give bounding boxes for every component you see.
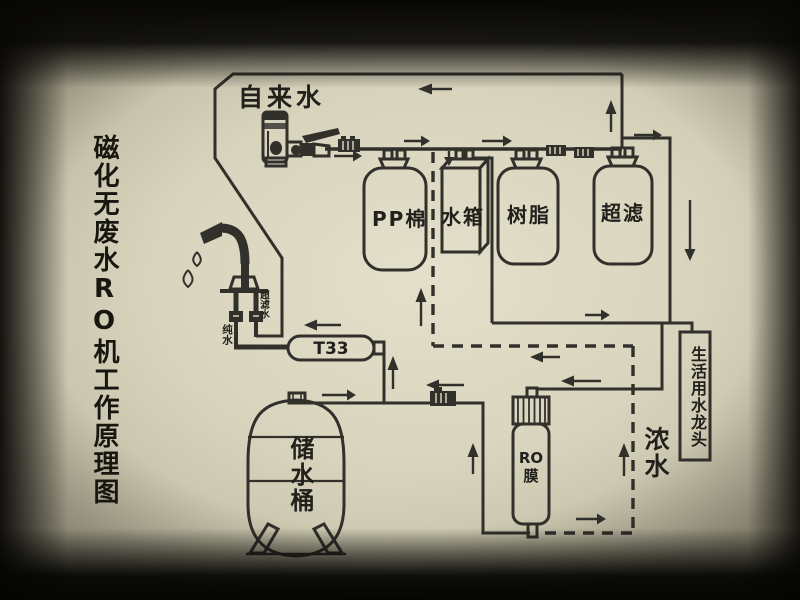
ro-membrane-label: RO膜 xyxy=(513,449,549,485)
arrow-right-main2-icon xyxy=(482,136,512,147)
diagram-title: 磁化无废水RO机工作原理图 xyxy=(86,134,123,520)
arrow-down-right-icon xyxy=(685,200,696,261)
arrow-left-checkvalve-icon xyxy=(426,380,464,391)
inline-fitting-3 xyxy=(574,147,594,158)
uf-water-label: 超滤水 xyxy=(256,290,270,322)
inlet-three-way-valve xyxy=(287,128,340,156)
arrow-left-ro-feed-icon xyxy=(561,376,601,387)
arrow-up-concentrate-icon xyxy=(619,443,630,476)
pp-cotton-label: PP棉 xyxy=(372,203,422,232)
domestic-faucet-label: 生活用水龙头 xyxy=(682,337,709,457)
arrow-right-tap-icon xyxy=(334,151,362,162)
ultrafilter-label: 超滤 xyxy=(600,197,646,226)
arrow-up-dashed-left-icon xyxy=(416,288,427,326)
tap-water-faucet xyxy=(263,112,287,166)
inline-fitting-tap xyxy=(338,136,360,152)
storage-bucket-label: 储水桶 xyxy=(283,436,318,540)
arrow-right-storage-icon xyxy=(322,390,356,401)
water-drop-icon xyxy=(183,270,192,287)
inline-fitting-2 xyxy=(546,145,566,156)
arrow-left-t33-icon xyxy=(304,320,341,331)
photo-of-screen: 磁化无废水RO机工作原理图 自来水 PP棉 水箱 树脂 超滤 T33 储水桶 R… xyxy=(0,0,800,600)
resin-label: 树脂 xyxy=(506,199,552,228)
arrow-up-t33-riser-icon xyxy=(388,356,399,389)
pipe-storage-ro xyxy=(298,403,530,533)
t33-label: T33 xyxy=(304,339,358,359)
arrow-up-ro-out-icon xyxy=(468,443,479,474)
arrow-right-main1-icon xyxy=(404,136,430,147)
arrow-right-dashed-bottom-icon xyxy=(576,514,606,525)
check-valve xyxy=(430,387,456,406)
arrow-left-top-icon xyxy=(418,84,452,95)
concentrate-water-label: 浓水 xyxy=(637,426,673,486)
water-drop-icon xyxy=(193,252,201,266)
tap-water-label: 自来水 xyxy=(238,78,325,114)
arrow-left-dashed-mid-icon xyxy=(530,352,560,363)
arrow-right-y323-icon xyxy=(585,310,610,321)
water-tank-label: 水箱 xyxy=(441,201,485,230)
pure-water-label: 纯水 xyxy=(220,324,235,352)
arrow-up-riser-icon xyxy=(606,100,617,132)
ro-membrane-label-line2: 膜 xyxy=(523,467,538,485)
ro-membrane-label-line1: RO xyxy=(519,449,543,467)
